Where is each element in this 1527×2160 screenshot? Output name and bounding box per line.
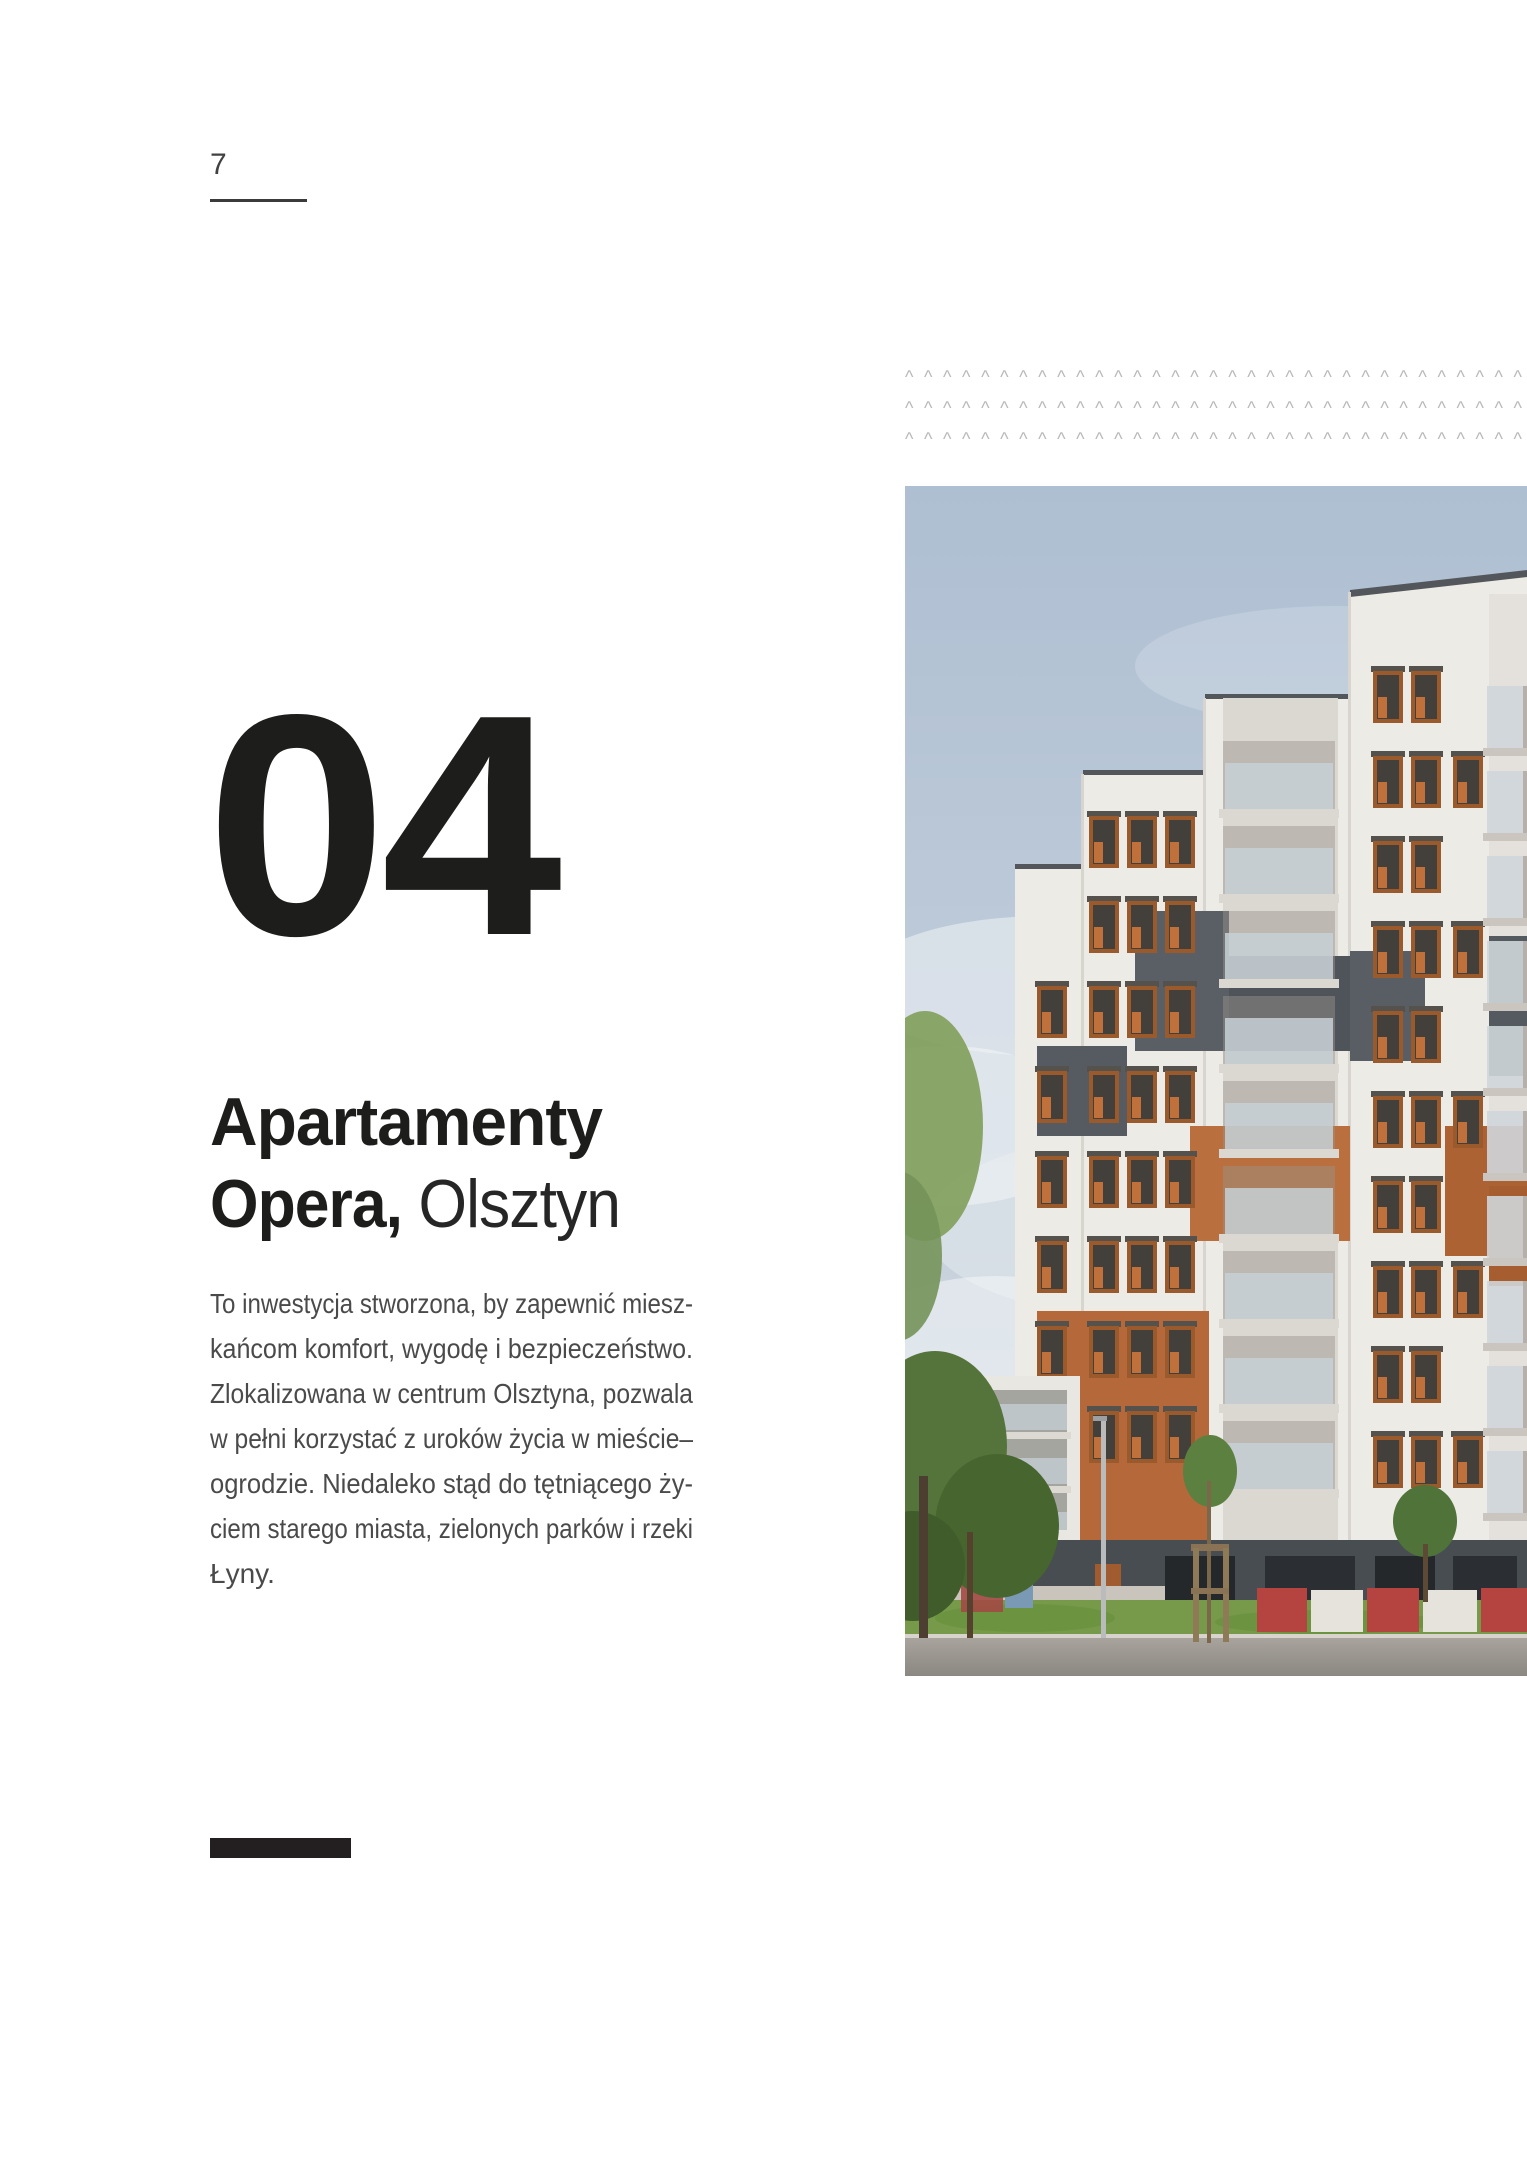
section-index-number: 04 [206, 668, 544, 983]
chevron-icon: ^ [1228, 393, 1236, 424]
chevron-icon: ^ [1133, 424, 1141, 455]
chevron-icon: ^ [962, 424, 970, 455]
chevron-row: ^^^^^^^^^^^^^^^^^^^^^^^^^^^^^^^^^ [905, 424, 1522, 455]
section-title-line2: Opera,Olsztyn [210, 1163, 657, 1245]
paragraph-line: To inwestycja stworzona, by zapewnić mie… [210, 1281, 693, 1326]
chevron-icon: ^ [924, 424, 932, 455]
chevron-icon: ^ [1361, 424, 1369, 455]
paragraph-line: ogrodzie. Niedaleko stąd do tętniącego ż… [210, 1461, 693, 1506]
chevron-icon: ^ [1456, 424, 1464, 455]
chevron-icon: ^ [1418, 362, 1426, 393]
chevron-icon: ^ [905, 393, 913, 424]
chevron-icon: ^ [1114, 424, 1122, 455]
chevron-icon: ^ [1323, 362, 1331, 393]
chevron-icon: ^ [1247, 393, 1255, 424]
section-title: Apartamenty Opera,Olsztyn [210, 1081, 657, 1245]
chevron-icon: ^ [1000, 424, 1008, 455]
chevron-icon: ^ [1171, 362, 1179, 393]
chevron-icon: ^ [1095, 424, 1103, 455]
chevron-icon: ^ [1304, 362, 1312, 393]
chevron-icon: ^ [1266, 393, 1274, 424]
chevron-icon: ^ [1095, 393, 1103, 424]
chevron-icon: ^ [1475, 393, 1483, 424]
chevron-icon: ^ [1399, 393, 1407, 424]
chevron-pattern: ^^^^^^^^^^^^^^^^^^^^^^^^^^^^^^^^^^^^^^^^… [905, 362, 1522, 455]
chevron-icon: ^ [1076, 362, 1084, 393]
chevron-icon: ^ [1361, 393, 1369, 424]
chevron-icon: ^ [1380, 424, 1388, 455]
chevron-icon: ^ [1076, 393, 1084, 424]
paragraph-line: kańcom komfort, wygodę i bezpieczeństwo. [210, 1326, 693, 1371]
chevron-icon: ^ [1323, 393, 1331, 424]
chevron-icon: ^ [1019, 393, 1027, 424]
chevron-icon: ^ [1285, 424, 1293, 455]
chevron-icon: ^ [1418, 424, 1426, 455]
chevron-icon: ^ [1342, 393, 1350, 424]
chevron-icon: ^ [1057, 424, 1065, 455]
chevron-icon: ^ [1095, 362, 1103, 393]
chevron-icon: ^ [981, 424, 989, 455]
chevron-icon: ^ [905, 362, 913, 393]
chevron-icon: ^ [1190, 424, 1198, 455]
chevron-icon: ^ [1514, 362, 1522, 393]
chevron-icon: ^ [1190, 393, 1198, 424]
chevron-icon: ^ [1437, 393, 1445, 424]
chevron-icon: ^ [1038, 393, 1046, 424]
chevron-icon: ^ [1171, 393, 1179, 424]
chevron-icon: ^ [1285, 362, 1293, 393]
header-rule [210, 199, 307, 202]
paragraph-line: Zlokalizowana w centrum Olsztyna, pozwal… [210, 1371, 693, 1416]
chevron-icon: ^ [1228, 362, 1236, 393]
chevron-icon: ^ [1171, 424, 1179, 455]
chevron-icon: ^ [1019, 362, 1027, 393]
paragraph-line: w pełni korzystać z uroków życia w mieśc… [210, 1416, 693, 1461]
chevron-icon: ^ [1152, 362, 1160, 393]
chevron-icon: ^ [1399, 424, 1407, 455]
chevron-icon: ^ [1209, 393, 1217, 424]
chevron-icon: ^ [1494, 424, 1502, 455]
chevron-icon: ^ [1342, 362, 1350, 393]
chevron-icon: ^ [1266, 362, 1274, 393]
chevron-icon: ^ [1114, 362, 1122, 393]
description-paragraph: To inwestycja stworzona, by zapewnić mie… [210, 1281, 693, 1596]
chevron-icon: ^ [1475, 362, 1483, 393]
chevron-icon: ^ [962, 362, 970, 393]
chevron-row: ^^^^^^^^^^^^^^^^^^^^^^^^^^^^^^^^^ [905, 393, 1522, 424]
chevron-icon: ^ [1475, 424, 1483, 455]
chevron-icon: ^ [1000, 393, 1008, 424]
chevron-icon: ^ [981, 393, 989, 424]
chevron-icon: ^ [1456, 393, 1464, 424]
chevron-icon: ^ [943, 362, 951, 393]
chevron-icon: ^ [1133, 362, 1141, 393]
brochure-page: 7 ^^^^^^^^^^^^^^^^^^^^^^^^^^^^^^^^^^^^^^… [0, 0, 1527, 2160]
chevron-icon: ^ [1000, 362, 1008, 393]
chevron-icon: ^ [943, 424, 951, 455]
chevron-icon: ^ [1209, 424, 1217, 455]
footer-accent-bar [210, 1838, 351, 1858]
chevron-icon: ^ [1399, 362, 1407, 393]
chevron-icon: ^ [1152, 393, 1160, 424]
chevron-icon: ^ [1019, 424, 1027, 455]
chevron-icon: ^ [1418, 393, 1426, 424]
chevron-icon: ^ [1076, 424, 1084, 455]
chevron-icon: ^ [1133, 393, 1141, 424]
chevron-icon: ^ [1437, 424, 1445, 455]
chevron-icon: ^ [1323, 424, 1331, 455]
chevron-icon: ^ [924, 362, 932, 393]
chevron-icon: ^ [1038, 424, 1046, 455]
chevron-icon: ^ [1304, 424, 1312, 455]
chevron-icon: ^ [1266, 424, 1274, 455]
chevron-icon: ^ [1228, 424, 1236, 455]
chevron-icon: ^ [1514, 424, 1522, 455]
chevron-icon: ^ [924, 393, 932, 424]
chevron-icon: ^ [943, 393, 951, 424]
chevron-icon: ^ [1304, 393, 1312, 424]
page-number: 7 [210, 148, 227, 182]
chevron-row: ^^^^^^^^^^^^^^^^^^^^^^^^^^^^^^^^^ [905, 362, 1522, 393]
chevron-icon: ^ [1038, 362, 1046, 393]
chevron-icon: ^ [1342, 424, 1350, 455]
section-title-line1: Apartamenty [210, 1081, 657, 1163]
chevron-icon: ^ [1247, 424, 1255, 455]
chevron-icon: ^ [1209, 362, 1217, 393]
building-photo [905, 486, 1527, 1676]
chevron-icon: ^ [1361, 362, 1369, 393]
paragraph-line: ciem starego miasta, zielonych parków i … [210, 1506, 693, 1551]
chevron-icon: ^ [1057, 393, 1065, 424]
chevron-icon: ^ [1247, 362, 1255, 393]
chevron-icon: ^ [1456, 362, 1464, 393]
chevron-icon: ^ [905, 424, 913, 455]
chevron-icon: ^ [1114, 393, 1122, 424]
chevron-icon: ^ [1494, 393, 1502, 424]
paragraph-line: Łyny. [210, 1551, 693, 1596]
chevron-icon: ^ [962, 393, 970, 424]
chevron-icon: ^ [1285, 393, 1293, 424]
chevron-icon: ^ [1057, 362, 1065, 393]
chevron-icon: ^ [1152, 424, 1160, 455]
chevron-icon: ^ [1494, 362, 1502, 393]
chevron-icon: ^ [1380, 362, 1388, 393]
chevron-icon: ^ [981, 362, 989, 393]
chevron-icon: ^ [1437, 362, 1445, 393]
chevron-icon: ^ [1514, 393, 1522, 424]
chevron-icon: ^ [1190, 362, 1198, 393]
chevron-icon: ^ [1380, 393, 1388, 424]
